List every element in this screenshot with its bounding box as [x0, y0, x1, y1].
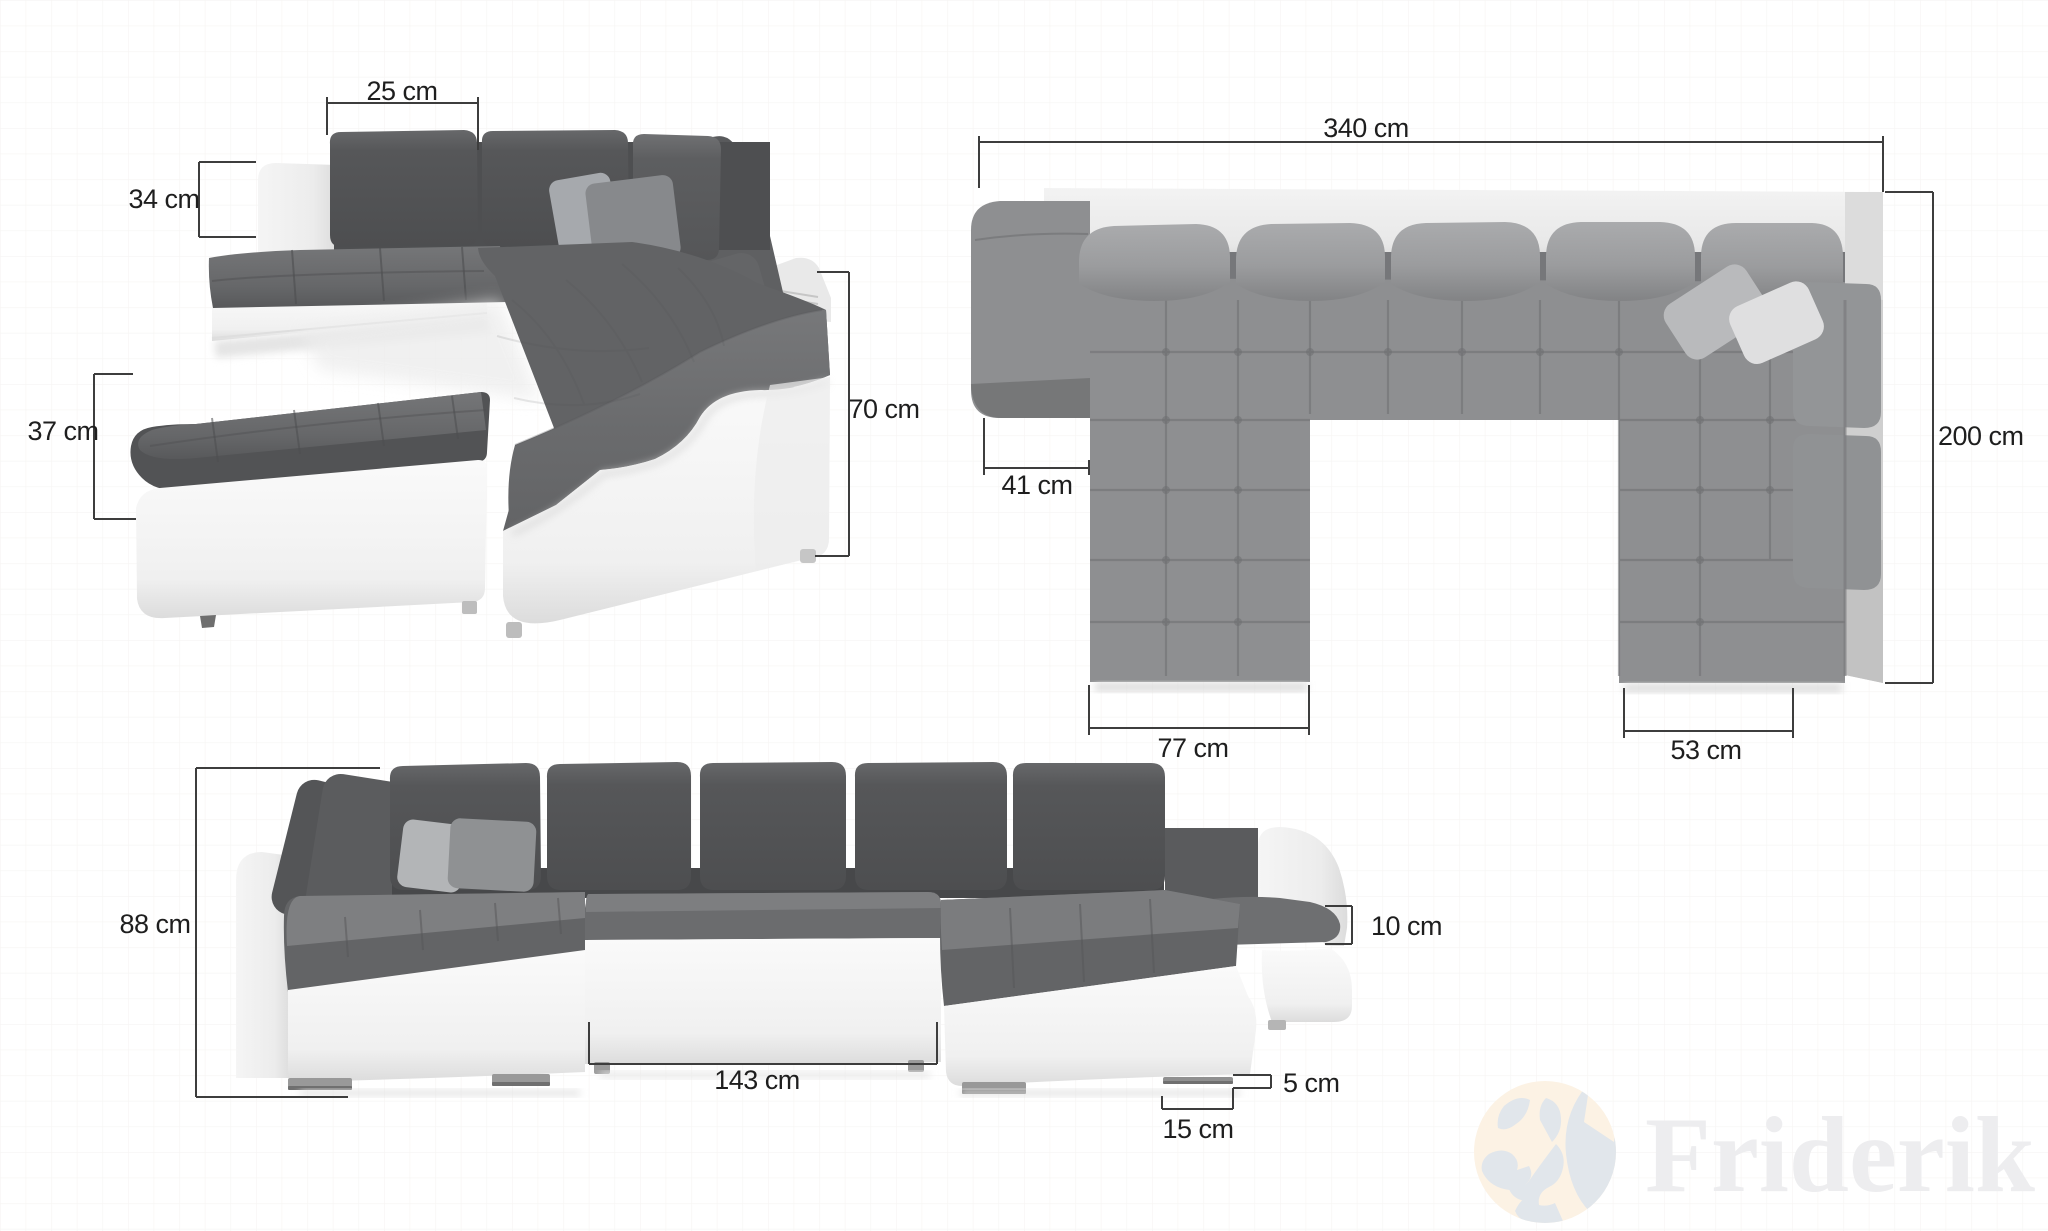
svg-text:37 cm: 37 cm [27, 416, 98, 446]
svg-text:Friderik: Friderik [1645, 1096, 2035, 1215]
svg-text:340 cm: 340 cm [1323, 113, 1409, 143]
svg-text:143 cm: 143 cm [714, 1065, 800, 1095]
svg-text:200 cm: 200 cm [1938, 421, 2024, 451]
svg-text:15 cm: 15 cm [1162, 1114, 1233, 1144]
svg-text:70 cm: 70 cm [848, 394, 919, 424]
svg-text:34 cm: 34 cm [128, 184, 199, 214]
svg-text:53 cm: 53 cm [1670, 735, 1741, 765]
svg-text:25 cm: 25 cm [366, 76, 437, 106]
svg-text:5 cm: 5 cm [1283, 1068, 1340, 1098]
svg-text:41 cm: 41 cm [1001, 470, 1072, 500]
svg-text:88 cm: 88 cm [119, 909, 190, 939]
svg-text:10 cm: 10 cm [1371, 911, 1442, 941]
svg-text:77 cm: 77 cm [1157, 733, 1228, 763]
